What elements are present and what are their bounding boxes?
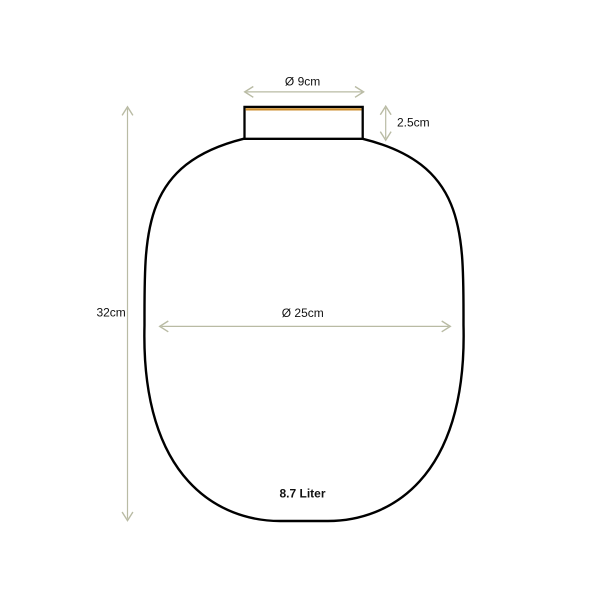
svg-text:2.5cm: 2.5cm (397, 115, 430, 129)
svg-text:8.7 Liter: 8.7 Liter (279, 487, 325, 501)
svg-text:Ø 9cm: Ø 9cm (285, 75, 320, 89)
svg-text:32cm: 32cm (96, 305, 125, 319)
svg-text:Ø 25cm: Ø 25cm (282, 306, 324, 320)
